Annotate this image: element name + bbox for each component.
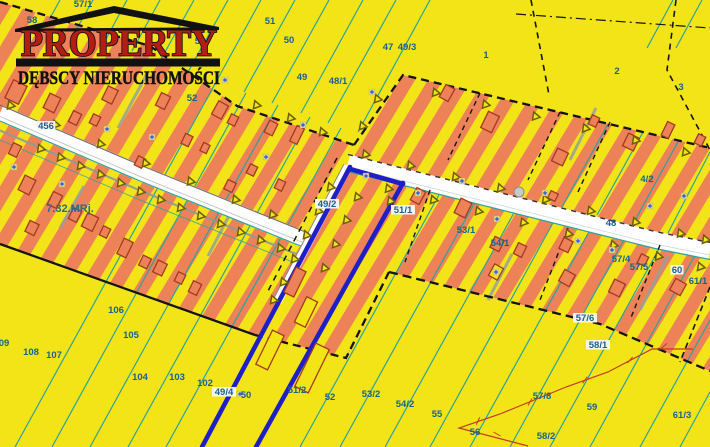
svg-text:58/2: 58/2 [537,431,556,442]
svg-text:54/2: 54/2 [396,399,415,410]
svg-text:4/2: 4/2 [640,174,653,185]
svg-text:58/1: 58/1 [589,340,608,351]
svg-text:49: 49 [297,72,308,83]
svg-text:107: 107 [46,350,62,361]
svg-text:49/2: 49/2 [318,199,337,210]
svg-text:51/1: 51/1 [394,205,413,216]
svg-text:7.32.MRj.: 7.32.MRj. [46,203,94,215]
svg-text:3: 3 [678,82,683,93]
svg-text:DĘBSCY NIERUCHOMOŚCI: DĘBSCY NIERUCHOMOŚCI [18,67,220,89]
svg-text:103: 103 [169,372,185,383]
svg-text:1: 1 [483,50,489,61]
svg-text:51/2: 51/2 [288,385,307,396]
svg-text:57/1: 57/1 [74,0,93,10]
svg-text:51: 51 [265,16,276,27]
svg-text:47: 47 [383,42,394,53]
svg-text:57/8: 57/8 [533,391,552,402]
svg-text:108: 108 [23,347,39,358]
svg-text:53/2: 53/2 [362,389,381,400]
svg-text:57/5: 57/5 [630,262,649,273]
svg-text:104: 104 [132,372,149,383]
svg-text:456: 456 [38,121,54,132]
svg-text:57/6: 57/6 [576,313,595,324]
svg-text:52: 52 [325,392,336,403]
svg-text:50: 50 [241,390,252,401]
svg-text:PROPERTY: PROPERTY [21,23,217,65]
svg-text:48: 48 [606,218,617,229]
svg-text:49/3: 49/3 [398,42,417,53]
svg-text:53/1: 53/1 [457,225,476,236]
svg-text:102: 102 [197,378,213,389]
svg-text:49/4: 49/4 [215,387,234,398]
svg-text:09: 09 [0,338,9,349]
svg-text:52: 52 [187,93,198,104]
svg-text:56: 56 [470,427,481,438]
svg-text:55: 55 [432,409,443,420]
svg-text:2: 2 [614,66,619,77]
svg-text:105: 105 [123,330,140,341]
svg-text:57/4: 57/4 [612,254,631,265]
svg-text:60: 60 [672,265,683,276]
svg-text:59: 59 [587,402,598,413]
svg-text:61/1: 61/1 [689,276,708,287]
svg-text:106: 106 [108,305,124,316]
svg-text:50: 50 [284,35,295,46]
svg-text:61/3: 61/3 [673,410,692,421]
svg-text:48/1: 48/1 [329,76,348,87]
svg-text:54/1: 54/1 [491,238,510,249]
